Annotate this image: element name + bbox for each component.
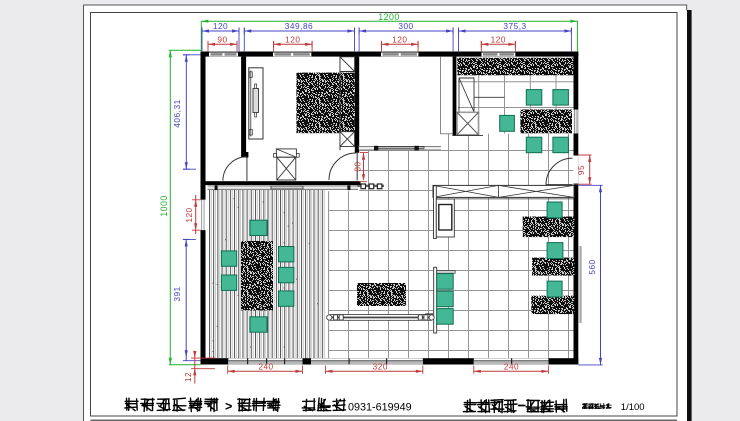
svg-text:120: 120 <box>491 34 506 44</box>
svg-text:1/100: 1/100 <box>621 402 645 413</box>
svg-text:349,86: 349,86 <box>285 21 313 31</box>
svg-text:120: 120 <box>285 34 300 44</box>
svg-text:90: 90 <box>217 34 227 44</box>
svg-text:1200: 1200 <box>378 12 400 22</box>
svg-text:12: 12 <box>183 372 193 382</box>
svg-text:320: 320 <box>373 362 388 372</box>
svg-text:120: 120 <box>184 207 194 222</box>
svg-text:95: 95 <box>576 165 586 175</box>
svg-text:0931-619949: 0931-619949 <box>348 402 412 414</box>
svg-text:391: 391 <box>172 286 182 301</box>
svg-text:406,31: 406,31 <box>172 99 182 127</box>
svg-text:240: 240 <box>504 362 519 372</box>
svg-text:>: > <box>225 400 232 414</box>
svg-text:120: 120 <box>392 34 407 44</box>
svg-text:375,3: 375,3 <box>503 21 526 31</box>
svg-text:240: 240 <box>258 362 273 372</box>
svg-text:120: 120 <box>213 21 228 31</box>
svg-text:300: 300 <box>398 21 413 31</box>
svg-text:1000: 1000 <box>159 195 169 217</box>
svg-text:560: 560 <box>587 259 597 274</box>
svg-text:80: 80 <box>352 161 362 171</box>
